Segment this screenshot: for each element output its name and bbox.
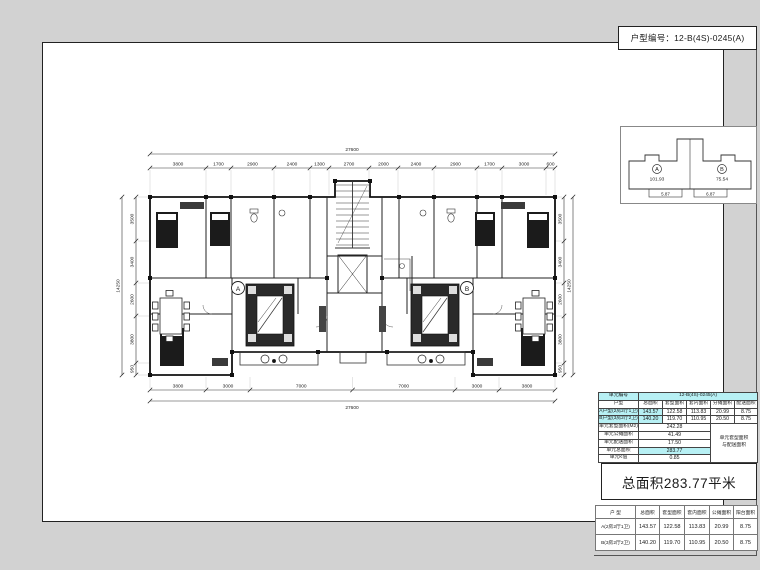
plant-circles <box>261 355 444 363</box>
row-a-share: 20.99 <box>710 519 734 535</box>
dim-label: 3500 <box>130 213 136 224</box>
col-header: 户 型 <box>596 506 636 519</box>
row-b-name: B(3房2厅2卫) <box>596 535 636 551</box>
page: { "header": { "unit_code_label": "户型编号："… <box>0 0 760 570</box>
col-header: 套型面积 <box>660 506 685 519</box>
col-header: 套内面积 <box>685 506 710 519</box>
dim-label: 1700 <box>484 162 495 168</box>
table-row: A(2房2厅1卫) 143.57 122.58 113.83 20.99 8.7… <box>596 519 758 535</box>
col-header: 户型 <box>599 400 639 408</box>
unit-a-total: 143.57 <box>639 408 663 416</box>
sink-icon <box>279 210 285 216</box>
unit-table-title-row: 单元编号 12-B(4S)-0245(A) <box>599 393 758 401</box>
dim-label: 7000 <box>296 384 307 390</box>
row-a-type: 122.58 <box>660 519 685 535</box>
row-a-balcony: 8.75 <box>734 519 758 535</box>
row-a-inner: 113.83 <box>685 519 710 535</box>
unit-a-marker-label: A <box>236 286 241 293</box>
col-header: 总面积 <box>636 506 660 519</box>
dim-label: 1700 <box>213 162 224 168</box>
key-plan-box: A 101.93 B 75.54 5.87 6.87 <box>620 126 757 204</box>
unit-code-box: 户型编号：12-B(4S)-0245(A) <box>618 26 757 50</box>
col-header: 总面积 <box>639 400 663 408</box>
dim-label: 2900 <box>247 162 258 168</box>
total-area-box: 总面积283.77平米 <box>601 463 757 500</box>
dim-label: 950 <box>558 365 564 373</box>
dim-label: 27600 <box>345 405 359 411</box>
dim-label: 1300 <box>314 162 325 168</box>
row-b-total: 140.20 <box>636 535 660 551</box>
col-header: 套内面积 <box>687 400 711 408</box>
key-plan-unit-b-area: 75.54 <box>716 177 728 183</box>
summary-total-area: 283.77 <box>639 447 711 455</box>
key-plan-dim-right: 6.87 <box>706 192 715 197</box>
summary-label: 单元套型面积(M2) <box>599 424 639 432</box>
dim-label: 2600 <box>558 294 564 305</box>
col-header: 套型面积 <box>663 400 687 408</box>
unit-a-share-area: 20.99 <box>711 408 735 416</box>
key-plan-dim-left: 5.87 <box>661 192 670 197</box>
sink-icon <box>420 210 426 216</box>
table-row: B户型(3房2厅2卫) 140.20 119.70 110.95 20.50 8… <box>599 416 758 424</box>
table-row: B(3房2厅2卫) 140.20 119.70 110.95 20.50 8.7… <box>596 535 758 551</box>
unit-b-marker-label: B <box>465 286 469 293</box>
summary-label: 单元K值 <box>599 455 639 463</box>
unit-table-title-label: 单元编号 <box>599 393 639 401</box>
row-b-share: 20.50 <box>710 535 734 551</box>
dim-label: 3800 <box>558 334 564 345</box>
dim-label: 950 <box>130 365 136 373</box>
table-row: A户型(2房2厅1卫) 143.57 122.58 113.83 20.99 8… <box>599 408 758 416</box>
key-plan-unit-a-area: 101.93 <box>650 177 665 183</box>
bottom-area-table: 户 型 总面积 套型面积 套内面积 公摊面积 阳台面积 A(2房2厅1卫) 14… <box>595 505 758 551</box>
dim-label: 7000 <box>398 384 409 390</box>
sofa-set-left <box>246 284 294 346</box>
summary-label: 单元公摊面积 <box>599 431 639 439</box>
unit-b-share-area: 20.50 <box>711 416 735 424</box>
unit-code-value: 12-B(4S)-0245(A) <box>674 33 744 43</box>
col-header: 分摊面积 <box>711 400 735 408</box>
unit-b-name: B户型(3房2厅2卫) <box>599 416 639 424</box>
unit-a-type-area: 122.58 <box>663 408 687 416</box>
dim-label: 3800 <box>522 384 533 390</box>
col-header: 配送面积 <box>735 400 758 408</box>
summary-label: 单元配送面积 <box>599 439 639 447</box>
dim-label: 14250 <box>116 279 122 293</box>
dim-label: 2900 <box>450 162 461 168</box>
floor-plan-drawing: A B 276003800170029002400130027002000240… <box>52 118 580 428</box>
unit-table-header-row: 户型 总面积 套型面积 套内面积 分摊面积 配送面积 <box>599 400 758 408</box>
unit-b-inner-area: 110.95 <box>687 416 711 424</box>
total-area-text: 总面积283.77平米 <box>622 472 736 492</box>
row-b-inner: 110.95 <box>685 535 710 551</box>
summary-value: 41.49 <box>639 431 711 439</box>
toilet-icon <box>448 214 454 222</box>
dim-label: 3800 <box>173 384 184 390</box>
unit-table-title-value: 12-B(4S)-0245(A) <box>639 393 758 401</box>
dim-label: 3400 <box>558 256 564 267</box>
col-header: 阳台面积 <box>734 506 758 519</box>
unit-area-table: 单元编号 12-B(4S)-0245(A) 户型 总面积 套型面积 套内面积 分… <box>598 392 758 463</box>
unit-a-name: A户型(2房2厅1卫) <box>599 408 639 416</box>
dim-label: 2400 <box>411 162 422 168</box>
unit-code-label: 户型编号： <box>631 32 675 44</box>
dim-label: 600 <box>546 162 554 168</box>
dim-label: 3800 <box>130 334 136 345</box>
unit-b-bonus-area: 8.75 <box>735 416 758 424</box>
unit-a-inner-area: 113.83 <box>687 408 711 416</box>
summary-value: 17.50 <box>639 439 711 447</box>
row-a-total: 143.57 <box>636 519 660 535</box>
summary-label: 单元总面积 <box>599 447 639 455</box>
dim-label: 3000 <box>472 384 483 390</box>
table-row: 单元套型面积(M2) 242.28 单元套型面积 与配送面积 <box>599 424 758 432</box>
dim-label: 3400 <box>130 256 136 267</box>
col-header: 公摊面积 <box>710 506 734 519</box>
key-plan-drawing: A 101.93 B 75.54 5.87 6.87 <box>621 127 756 203</box>
entrance-stoop <box>340 352 366 363</box>
summary-k-value: 0.85 <box>639 455 711 463</box>
dim-label: 3000 <box>519 162 530 168</box>
dim-label: 2600 <box>130 294 136 305</box>
dim-label: 2000 <box>378 162 389 168</box>
dim-label: 14250 <box>567 279 573 293</box>
dim-label: 2400 <box>287 162 298 168</box>
row-a-name: A(2房2厅1卫) <box>596 519 636 535</box>
key-plan-unit-b-label: B <box>720 167 724 173</box>
row-b-balcony: 8.75 <box>734 535 758 551</box>
unit-b-total: 140.20 <box>639 416 663 424</box>
summary-value: 242.28 <box>639 424 711 432</box>
unit-b-type-area: 119.70 <box>663 416 687 424</box>
key-plan-unit-a-label: A <box>655 167 659 173</box>
note-line2: 与配送面积 <box>711 443 757 450</box>
dim-label: 3500 <box>558 213 564 224</box>
balconies <box>240 352 465 365</box>
dim-label: 2700 <box>344 162 355 168</box>
unit-table-note: 单元套型面积 与配送面积 <box>711 424 758 463</box>
bottom-table-header-row: 户 型 总面积 套型面积 套内面积 公摊面积 阳台面积 <box>596 506 758 519</box>
dim-label: 27600 <box>345 147 359 153</box>
dim-label: 3800 <box>173 162 184 168</box>
row-b-type: 119.70 <box>660 535 685 551</box>
toilet-icon <box>251 214 257 222</box>
sofa-set-right <box>411 284 459 346</box>
unit-a-bonus-area: 8.75 <box>735 408 758 416</box>
dim-label: 3000 <box>223 384 234 390</box>
sheet-bottom-edge-line <box>594 555 757 556</box>
